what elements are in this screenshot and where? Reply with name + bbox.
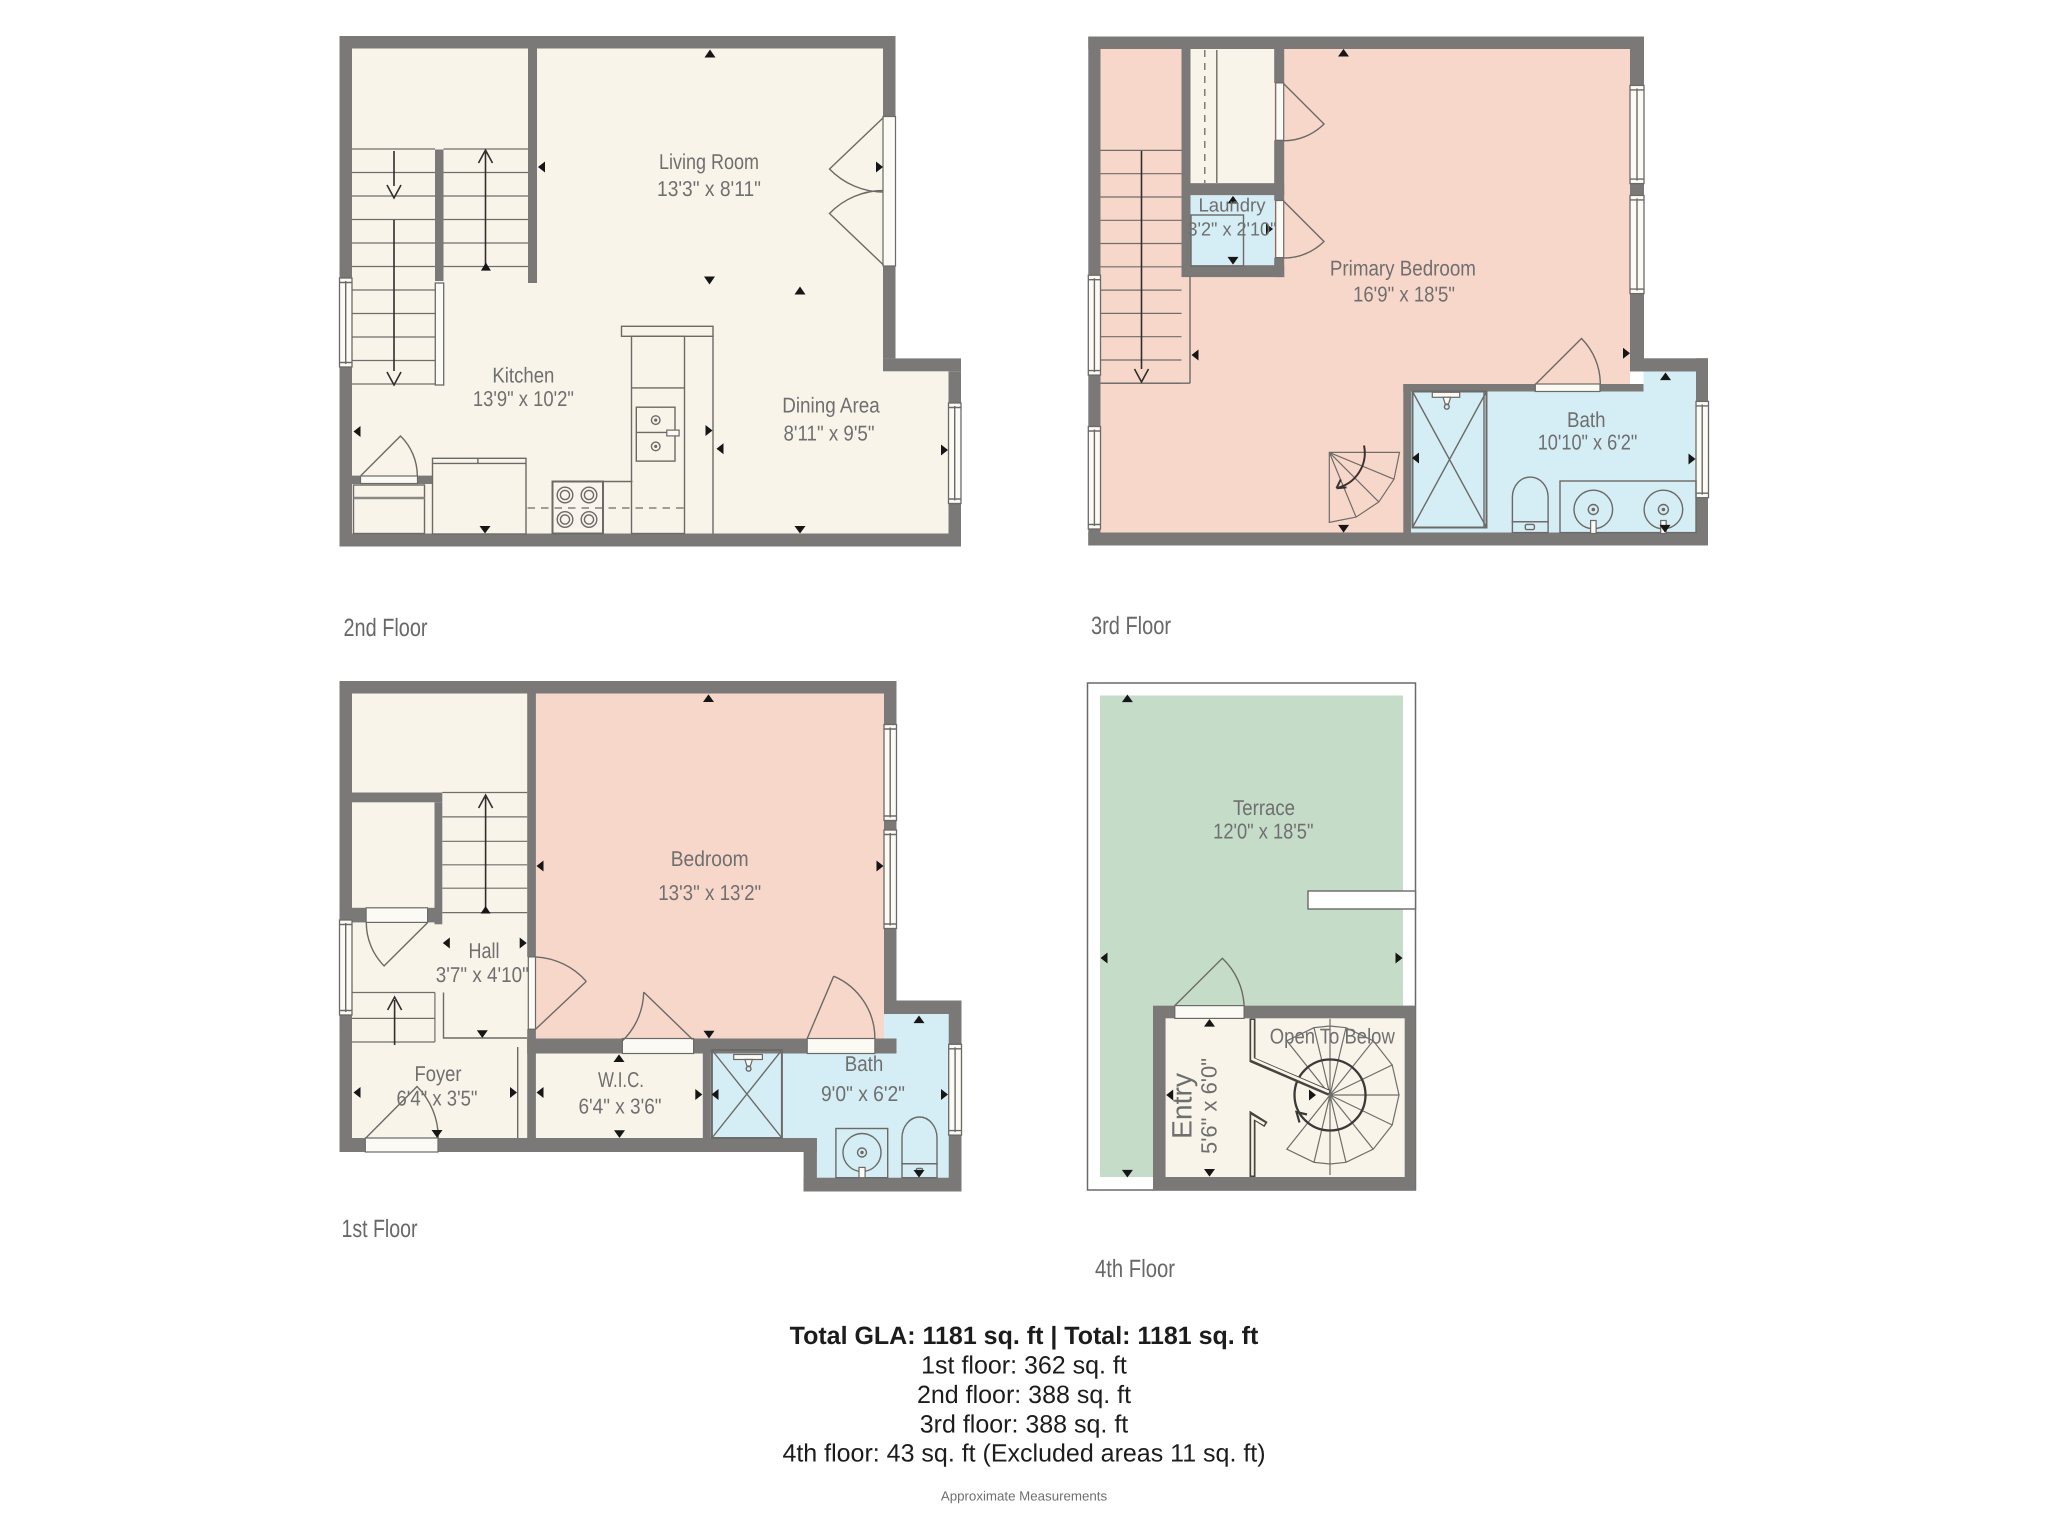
svg-text:Open To Below: Open To Below (1270, 1025, 1395, 1049)
svg-text:Living Room: Living Room (659, 150, 759, 174)
svg-text:9'0" x 6'2": 9'0" x 6'2" (821, 1082, 905, 1106)
svg-text:Bath: Bath (1567, 408, 1606, 432)
svg-text:Foyer: Foyer (415, 1062, 462, 1086)
svg-text:13'3" x 13'2": 13'3" x 13'2" (658, 881, 761, 905)
svg-text:Total GLA: 1181 sq. ft | Total: Total GLA: 1181 sq. ft | Total: 1181 sq.… (790, 1322, 1259, 1350)
svg-text:12'0" x 18'5": 12'0" x 18'5" (1213, 820, 1313, 844)
svg-text:Entry: Entry (1167, 1073, 1198, 1139)
svg-text:Laundry: Laundry (1199, 196, 1266, 217)
svg-text:2nd Floor: 2nd Floor (344, 614, 428, 642)
svg-text:16'9" x 18'5": 16'9" x 18'5" (1353, 283, 1455, 307)
svg-text:3rd Floor: 3rd Floor (1091, 612, 1171, 640)
svg-text:4th Floor: 4th Floor (1095, 1255, 1175, 1283)
svg-text:Primary Bedroom: Primary Bedroom (1330, 257, 1476, 281)
svg-text:1st floor: 362 sq. ft: 1st floor: 362 sq. ft (921, 1352, 1127, 1380)
svg-text:W.I.C.: W.I.C. (598, 1068, 644, 1092)
svg-text:4th floor: 43 sq. ft (Excluded: 4th floor: 43 sq. ft (Excluded areas 11 … (782, 1440, 1265, 1468)
svg-text:5'6" x 6'0": 5'6" x 6'0" (1197, 1058, 1222, 1154)
svg-text:Approximate Measurements: Approximate Measurements (941, 1489, 1108, 1504)
svg-text:13'9" x 10'2": 13'9" x 10'2" (473, 387, 574, 411)
svg-text:13'3" x 8'11": 13'3" x 8'11" (657, 177, 761, 201)
svg-text:1st Floor: 1st Floor (342, 1215, 418, 1243)
svg-text:2nd floor: 388 sq. ft: 2nd floor: 388 sq. ft (917, 1381, 1131, 1409)
svg-text:3rd floor: 388 sq. ft: 3rd floor: 388 sq. ft (920, 1411, 1129, 1439)
svg-text:3'7" x 4'10": 3'7" x 4'10" (436, 963, 529, 987)
svg-text:8'11" x 9'5": 8'11" x 9'5" (784, 421, 875, 445)
svg-text:Dining Area: Dining Area (782, 394, 880, 418)
svg-text:Hall: Hall (469, 939, 500, 963)
svg-text:Kitchen: Kitchen (492, 363, 554, 387)
svg-text:Bath: Bath (845, 1052, 884, 1076)
svg-text:10'10" x 6'2": 10'10" x 6'2" (1538, 430, 1638, 454)
svg-text:Bedroom: Bedroom (671, 847, 749, 871)
svg-text:6'4" x 3'6": 6'4" x 3'6" (579, 1095, 662, 1119)
svg-text:6'4" x 3'5": 6'4" x 3'5" (397, 1087, 478, 1111)
svg-text:3'2" x 2'10": 3'2" x 2'10" (1188, 220, 1277, 241)
svg-text:Terrace: Terrace (1233, 796, 1295, 820)
